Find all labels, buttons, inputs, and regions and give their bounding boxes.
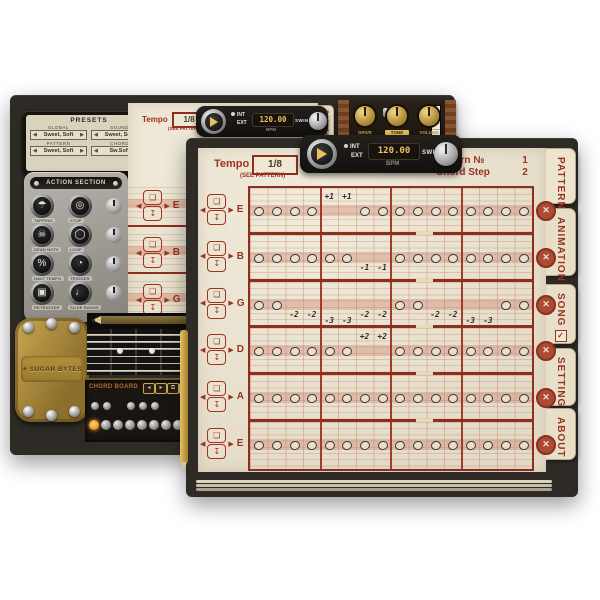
- bg-bpm-caption: BPM: [266, 127, 276, 132]
- action-label: STOP: [68, 218, 84, 223]
- prev-arrow-icon[interactable]: ◀: [94, 148, 98, 154]
- row-label: E: [237, 438, 247, 449]
- tone-knob[interactable]: [387, 106, 407, 126]
- row-paste-button[interactable]: ↧: [143, 206, 162, 221]
- stop-icon: ◎: [76, 201, 85, 211]
- row-next-icon[interactable]: ▶: [164, 249, 169, 257]
- swing-knob[interactable]: [434, 142, 458, 166]
- action-section-title: ACTION SECTION: [46, 180, 106, 186]
- skull-icon: ☠: [38, 230, 47, 240]
- step-offset-annotation[interactable]: -3: [339, 316, 355, 325]
- loop-icon: ◯: [74, 230, 85, 240]
- row-label: G: [237, 298, 247, 309]
- step-offset-annotation[interactable]: -2: [427, 310, 443, 319]
- action-row: ☠ ◯: [30, 223, 122, 247]
- row-paste-button[interactable]: ↧: [207, 210, 226, 225]
- preset-selector[interactable]: ◀ Sweet, Soft ▶: [30, 146, 87, 156]
- chord-button[interactable]: [113, 420, 123, 430]
- action-knob[interactable]: [106, 256, 122, 272]
- square-icon: ▣: [37, 288, 46, 298]
- song-mode-checkbox[interactable]: ✓: [555, 330, 567, 342]
- step-offset-annotation[interactable]: +1: [321, 192, 337, 201]
- step-offset-annotation[interactable]: -2: [374, 310, 390, 319]
- bg-row-label: E: [173, 200, 183, 211]
- action-row: ☂ ◎: [30, 194, 122, 218]
- row-controls-b-1: ◀ ❏ ↧ ▶ B: [200, 241, 247, 272]
- fret-marker-dot: [117, 348, 123, 354]
- row-copy-button[interactable]: ❏: [207, 334, 226, 349]
- row-prev-icon[interactable]: ◀: [200, 299, 205, 307]
- hat-icon: ☂: [38, 201, 47, 211]
- string-row-g-2: -2-2-3-3-2-2-2-2-3-3: [250, 282, 532, 329]
- row-controls-e-0: ◀ ❏ ↧ ▶ E: [200, 194, 247, 225]
- row-prev-icon[interactable]: ◀: [136, 202, 141, 210]
- pencil-icon: [101, 316, 193, 324]
- row-prev-icon[interactable]: ◀: [136, 249, 141, 257]
- bg-swing-knob[interactable]: [309, 112, 327, 130]
- stop-button[interactable]: ◎: [68, 194, 92, 218]
- action-label: HALF TEMPO: [32, 276, 64, 281]
- chord-board-mini-button[interactable]: ◂: [143, 383, 155, 394]
- row-copy-button[interactable]: ❏: [207, 381, 226, 396]
- dead-note-button[interactable]: ☠: [30, 223, 54, 247]
- row-prev-icon[interactable]: ◀: [200, 440, 205, 448]
- preset-value: Sweet, Soft: [44, 148, 74, 154]
- string-row-e-0: +1+1: [250, 188, 532, 235]
- bpm-caption: BPM: [386, 161, 399, 167]
- step-offset-annotation[interactable]: -1: [374, 263, 390, 272]
- tempo-value-box[interactable]: 1/8: [252, 155, 298, 175]
- row-paste-button[interactable]: ↧: [143, 253, 162, 268]
- row-prev-icon[interactable]: ◀: [200, 393, 205, 401]
- play-icon: [210, 117, 218, 127]
- step-offset-annotation[interactable]: +2: [374, 332, 390, 341]
- sync-toggle[interactable]: INT EXT: [344, 143, 363, 161]
- chord-board-mini-button[interactable]: ⧉: [167, 383, 179, 394]
- step-offset-annotation[interactable]: -3: [480, 316, 496, 325]
- row-copy-button[interactable]: ❏: [207, 241, 226, 256]
- tab-pattern[interactable]: PATTERN: [546, 148, 576, 204]
- chord-board-label: CHORD BOARD: [89, 384, 138, 390]
- row-copy-button[interactable]: ❏: [143, 237, 162, 252]
- sync-indicator-dot: [231, 112, 235, 116]
- percent-icon: %: [38, 259, 47, 269]
- row-label: B: [237, 251, 247, 262]
- step-offset-annotation[interactable]: -2: [357, 310, 373, 319]
- row-prev-icon[interactable]: ◀: [136, 296, 141, 304]
- row-prev-icon[interactable]: ◀: [200, 252, 205, 260]
- row-mute-button[interactable]: ✕: [536, 435, 556, 455]
- row-next-icon[interactable]: ▶: [164, 296, 169, 304]
- bg-sync-toggle[interactable]: INT EXT: [231, 112, 247, 127]
- sugar-bytes-logo: ✦ SUGAR BYTES: [21, 356, 83, 382]
- action-knob[interactable]: [106, 285, 122, 301]
- row-label: E: [237, 204, 247, 215]
- bell-icon: ♩: [75, 288, 85, 298]
- row-paste-button[interactable]: ↧: [207, 397, 226, 412]
- paper-stack-edge: [196, 484, 552, 487]
- preset-field-pattern: PATTERN ◀ Sweet, Soft ▶: [30, 141, 87, 156]
- action-section-titlebar: ACTION SECTION: [30, 177, 122, 189]
- action-row: % ◔: [30, 252, 122, 276]
- tuning-peg: [69, 322, 80, 333]
- pattern-editor-window: PATTERNANIMATIONSONG✓SETTINGSABOUT Tempo…: [186, 138, 578, 497]
- retrigger-button[interactable]: ▣: [30, 281, 54, 305]
- row-prev-icon[interactable]: ◀: [200, 346, 205, 354]
- preset-field-global: GLOBAL ◀ Sweet, Soft ▶: [30, 125, 87, 140]
- string-row-d-3: +2+2: [250, 328, 532, 375]
- row-next-icon[interactable]: ▶: [228, 346, 233, 354]
- bg-row-label: G: [173, 294, 183, 305]
- action-label: RETRIGGER: [32, 305, 62, 310]
- step-offset-annotation[interactable]: -3: [321, 316, 337, 325]
- tapping-button[interactable]: ☂: [30, 194, 54, 218]
- play-button[interactable]: [307, 139, 337, 169]
- guitar-neck-rail: [87, 313, 196, 329]
- paper-stack-edge: [196, 480, 552, 483]
- chord-button[interactable]: [161, 420, 171, 430]
- bg-bpm-display[interactable]: 120.00: [252, 113, 294, 127]
- row-next-icon[interactable]: ▶: [228, 393, 233, 401]
- tuning-peg: [46, 410, 57, 421]
- row-prev-icon[interactable]: ◀: [200, 206, 205, 214]
- step-offset-annotation[interactable]: +1: [339, 192, 355, 201]
- chord-button[interactable]: [89, 420, 99, 430]
- paper-stack-edge: [196, 488, 552, 491]
- row-paste-button[interactable]: ↧: [207, 350, 226, 365]
- chord-button[interactable]: [137, 420, 147, 430]
- row-label: A: [237, 391, 247, 402]
- bg-play-button[interactable]: [201, 109, 226, 134]
- row-label: D: [237, 344, 247, 355]
- action-label: DEAD NOTE: [32, 247, 61, 252]
- slide-range-button[interactable]: ♩: [68, 281, 92, 305]
- string-row-b-1: -1-1: [250, 235, 532, 282]
- chord-button[interactable]: [125, 420, 135, 430]
- row-copy-button[interactable]: ❏: [143, 284, 162, 299]
- action-knob[interactable]: [106, 227, 122, 243]
- preset-value: Sw.Soft: [110, 148, 130, 154]
- row-copy-button[interactable]: ❏: [143, 190, 162, 205]
- chord-button[interactable]: [149, 420, 159, 430]
- step-offset-annotation[interactable]: -2: [304, 310, 320, 319]
- volume-knob[interactable]: [419, 106, 439, 126]
- row-mute-button[interactable]: ✕: [536, 201, 556, 221]
- chord-button[interactable]: [101, 420, 111, 430]
- row-controls-g-2: ◀ ❏ ↧ ▶ G: [200, 288, 247, 319]
- chord-button-upper[interactable]: [139, 402, 147, 410]
- step-offset-annotation[interactable]: +2: [357, 332, 373, 341]
- preset-value: Sweet, Soft: [44, 132, 74, 138]
- prev-arrow-icon[interactable]: ◀: [94, 132, 98, 138]
- tempo-note: (SEE PATTERN): [240, 173, 285, 179]
- prev-arrow-icon[interactable]: ◀: [33, 132, 37, 138]
- row-copy-button[interactable]: ❏: [207, 288, 226, 303]
- logo-star-icon: ✦: [22, 365, 28, 373]
- string-row-e-5: [250, 422, 532, 469]
- screw-icon: [34, 181, 39, 186]
- next-arrow-icon[interactable]: ▶: [80, 148, 84, 154]
- eye-icon: ◔: [77, 259, 83, 269]
- row-next-icon[interactable]: ▶: [164, 202, 169, 210]
- bpm-display[interactable]: 120.00: [368, 143, 420, 160]
- tuning-peg: [69, 406, 80, 417]
- row-next-icon[interactable]: ▶: [228, 252, 233, 260]
- prev-arrow-icon[interactable]: ◀: [33, 148, 37, 154]
- tuning-peg: [23, 406, 34, 417]
- loop-button[interactable]: ◯: [68, 223, 92, 247]
- vertical-pencil-icon: [180, 330, 188, 462]
- row-paste-button[interactable]: ↧: [207, 304, 226, 319]
- action-knob[interactable]: [106, 198, 122, 214]
- pattern-sheet: Tempo 1/8 (SEE PATTERN) Pattern №1 Chord…: [198, 148, 546, 472]
- row-copy-button[interactable]: ❏: [207, 194, 226, 209]
- sync-indicator-dot: [344, 144, 348, 148]
- tab-song[interactable]: SONG✓: [546, 284, 576, 344]
- action-label: TRIGGER: [68, 276, 92, 281]
- row-controls-d-3: ◀ ❏ ↧ ▶ D: [200, 334, 247, 365]
- bg-tempo-label: Tempo: [142, 115, 168, 124]
- preset-selector[interactable]: ◀ Sweet, Soft ▶: [30, 130, 87, 140]
- action-label: TAPPING: [32, 218, 55, 223]
- row-next-icon[interactable]: ▶: [228, 440, 233, 448]
- row-paste-button[interactable]: ↧: [207, 444, 226, 459]
- row-controls-e-5: ◀ ❏ ↧ ▶ E: [200, 428, 247, 459]
- next-arrow-icon[interactable]: ▶: [80, 132, 84, 138]
- row-mute-button[interactable]: ✕: [536, 295, 556, 315]
- chord-button-upper[interactable]: [103, 402, 111, 410]
- action-label: LOOP: [68, 247, 84, 252]
- fret-marker-dot: [149, 348, 155, 354]
- tuning-peg: [23, 322, 34, 333]
- trigger-button[interactable]: ◔: [68, 252, 92, 276]
- step-offset-annotation[interactable]: -2: [286, 310, 302, 319]
- step-offset-annotation[interactable]: -3: [462, 316, 478, 325]
- step-offset-annotation[interactable]: -2: [445, 310, 461, 319]
- screw-icon: [113, 181, 118, 186]
- row-paste-button[interactable]: ↧: [207, 257, 226, 272]
- transport-bar: INT EXT 120.00 BPM SWING: [300, 135, 462, 173]
- row-next-icon[interactable]: ▶: [228, 206, 233, 214]
- step-offset-annotation[interactable]: -1: [357, 263, 373, 272]
- chord-button-upper[interactable]: [127, 402, 135, 410]
- bg-row-label: B: [173, 247, 183, 258]
- play-icon: [317, 148, 327, 160]
- chord-board-mini-button[interactable]: ▸: [155, 383, 167, 394]
- action-label: SLIDE RANGE: [68, 305, 101, 310]
- chord-button-upper[interactable]: [151, 402, 159, 410]
- tempo-label: Tempo: [214, 158, 249, 170]
- row-copy-button[interactable]: ❏: [207, 428, 226, 443]
- action-section-panel: ACTION SECTION ☂ ◎ ☠ ◯ % ◔ ▣ ♩ TAPPINGST…: [24, 172, 128, 322]
- action-row: ▣ ♩: [30, 281, 122, 305]
- drive-knob[interactable]: [355, 106, 375, 126]
- step-grid: +1+1 -1-1 -2-2-3-3-2-2-2-2-3-3 +2+2: [248, 186, 534, 471]
- string-row-a-4: [250, 375, 532, 422]
- bg-transport-bar: INT EXT 120.00 BPM SWING: [196, 106, 328, 137]
- guitar-headstock: ✦ SUGAR BYTES: [15, 318, 89, 422]
- half-tempo-button[interactable]: %: [30, 252, 54, 276]
- tuning-peg: [46, 318, 57, 329]
- chord-button-upper[interactable]: [91, 402, 99, 410]
- row-controls-a-4: ◀ ❏ ↧ ▶ A: [200, 381, 247, 412]
- row-next-icon[interactable]: ▶: [228, 299, 233, 307]
- row-mute-button[interactable]: ✕: [536, 248, 556, 268]
